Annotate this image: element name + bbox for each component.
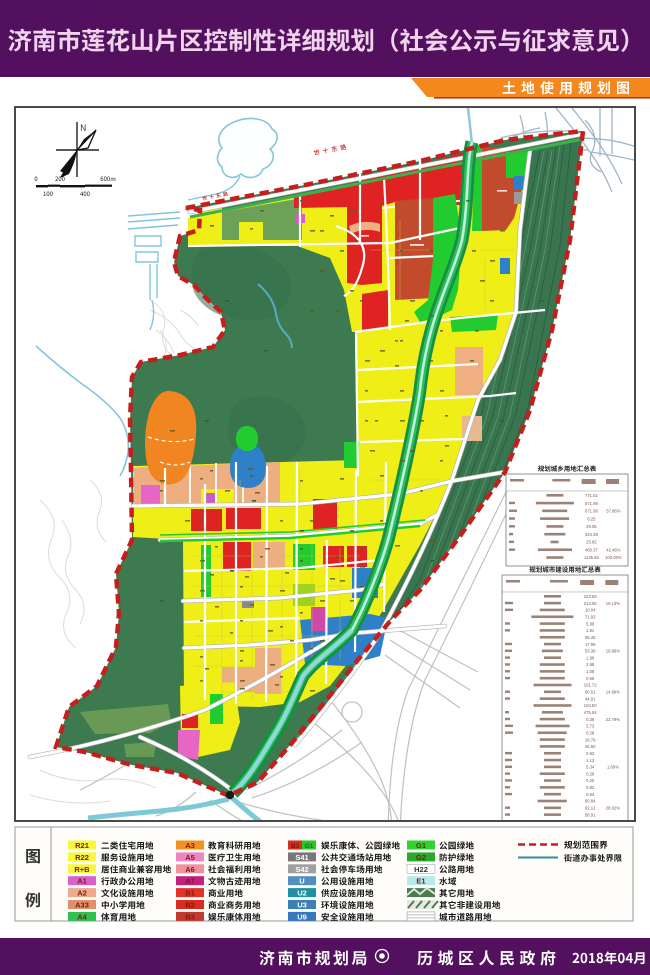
svg-text:25.82: 25.82 <box>586 540 597 545</box>
svg-text:1.91: 1.91 <box>586 628 595 633</box>
svg-text:58.91: 58.91 <box>585 812 596 817</box>
svg-text:1.13: 1.13 <box>586 758 595 763</box>
svg-text:H22: H22 <box>414 865 428 874</box>
svg-text:1.99: 1.99 <box>586 655 595 660</box>
svg-text:104.50: 104.50 <box>584 703 597 708</box>
svg-text:324.39: 324.39 <box>585 532 598 537</box>
svg-text:460.37: 460.37 <box>585 547 598 552</box>
svg-text:19.13%: 19.13% <box>606 601 620 606</box>
svg-text:0.28: 0.28 <box>586 771 595 776</box>
svg-text:0.56: 0.56 <box>586 676 595 681</box>
svg-text:671.98: 671.98 <box>585 501 598 506</box>
svg-text:16.79: 16.79 <box>585 737 596 742</box>
svg-text:A5: A5 <box>185 853 195 862</box>
svg-text:62.12: 62.12 <box>585 806 596 811</box>
svg-text:R+B: R+B <box>74 865 90 874</box>
svg-text:5.80: 5.80 <box>586 621 595 626</box>
svg-text:U9: U9 <box>297 912 307 921</box>
svg-text:S42: S42 <box>295 865 308 874</box>
svg-text:G2: G2 <box>416 853 426 862</box>
svg-text:10.04: 10.04 <box>585 608 596 613</box>
svg-text:A4: A4 <box>77 912 87 921</box>
svg-text:0.82: 0.82 <box>586 785 595 790</box>
svg-text:U2: U2 <box>297 889 307 898</box>
svg-text:A33: A33 <box>75 901 89 910</box>
svg-text:A3: A3 <box>185 841 195 850</box>
svg-text:57.86%: 57.86% <box>606 509 620 514</box>
svg-text:2.98: 2.98 <box>586 662 595 667</box>
svg-text:A6: A6 <box>185 865 195 874</box>
svg-text:475.54: 475.54 <box>584 710 597 715</box>
svg-text:771.01: 771.01 <box>585 493 598 498</box>
svg-text:R22: R22 <box>75 853 89 862</box>
svg-text:6.25: 6.25 <box>587 516 596 521</box>
svg-text:5.34: 5.34 <box>586 765 595 770</box>
svg-text:53.36: 53.36 <box>585 649 596 654</box>
svg-text:101.72: 101.72 <box>584 683 597 688</box>
svg-text:28.02%: 28.02% <box>606 806 620 811</box>
svg-text:671.98: 671.98 <box>585 509 598 514</box>
svg-text:2.73: 2.73 <box>586 724 595 729</box>
svg-text:17.99: 17.99 <box>585 642 596 647</box>
svg-text:1.89%: 1.89% <box>607 765 619 770</box>
svg-text:B3: B3 <box>185 912 195 921</box>
svg-text:1.08: 1.08 <box>586 669 595 674</box>
svg-text:42.46%: 42.46% <box>606 547 620 552</box>
svg-text:213.55: 213.55 <box>584 601 597 606</box>
svg-text:S41: S41 <box>295 853 308 862</box>
svg-text:E1: E1 <box>416 877 425 886</box>
svg-text:90.84: 90.84 <box>585 799 596 804</box>
svg-text:A2: A2 <box>77 889 87 898</box>
svg-text:29.06: 29.06 <box>586 524 597 529</box>
svg-text:0.36: 0.36 <box>586 717 595 722</box>
svg-text:22.79%: 22.79% <box>606 717 620 722</box>
svg-text:A7: A7 <box>185 877 195 886</box>
svg-text:44.91: 44.91 <box>585 696 596 701</box>
svg-text:19.89%: 19.89% <box>606 649 620 654</box>
svg-text:0.63: 0.63 <box>586 792 595 797</box>
svg-text:G1: G1 <box>416 841 426 850</box>
svg-text:1135.65: 1135.65 <box>584 555 599 560</box>
svg-text:80.51: 80.51 <box>585 690 596 695</box>
svg-text:0.25: 0.25 <box>586 778 595 783</box>
svg-text:100.00%: 100.00% <box>605 555 622 560</box>
svg-text:0.93: 0.93 <box>586 751 595 756</box>
svg-text:U: U <box>299 877 304 886</box>
svg-text:223.58: 223.58 <box>584 594 597 599</box>
svg-text:R21: R21 <box>75 841 89 850</box>
svg-text:55.45: 55.45 <box>585 635 596 640</box>
svg-text:25.60: 25.60 <box>585 744 596 749</box>
svg-text:0.28: 0.28 <box>586 730 595 735</box>
svg-text:A1: A1 <box>77 877 87 886</box>
svg-text:B2: B2 <box>185 901 195 910</box>
svg-text:G1: G1 <box>305 843 314 850</box>
svg-text:14.89%: 14.89% <box>606 690 620 695</box>
svg-text:U3: U3 <box>297 901 307 910</box>
svg-text:B3: B3 <box>291 843 300 850</box>
svg-text:71.93: 71.93 <box>585 614 596 619</box>
svg-text:B1: B1 <box>185 889 195 898</box>
